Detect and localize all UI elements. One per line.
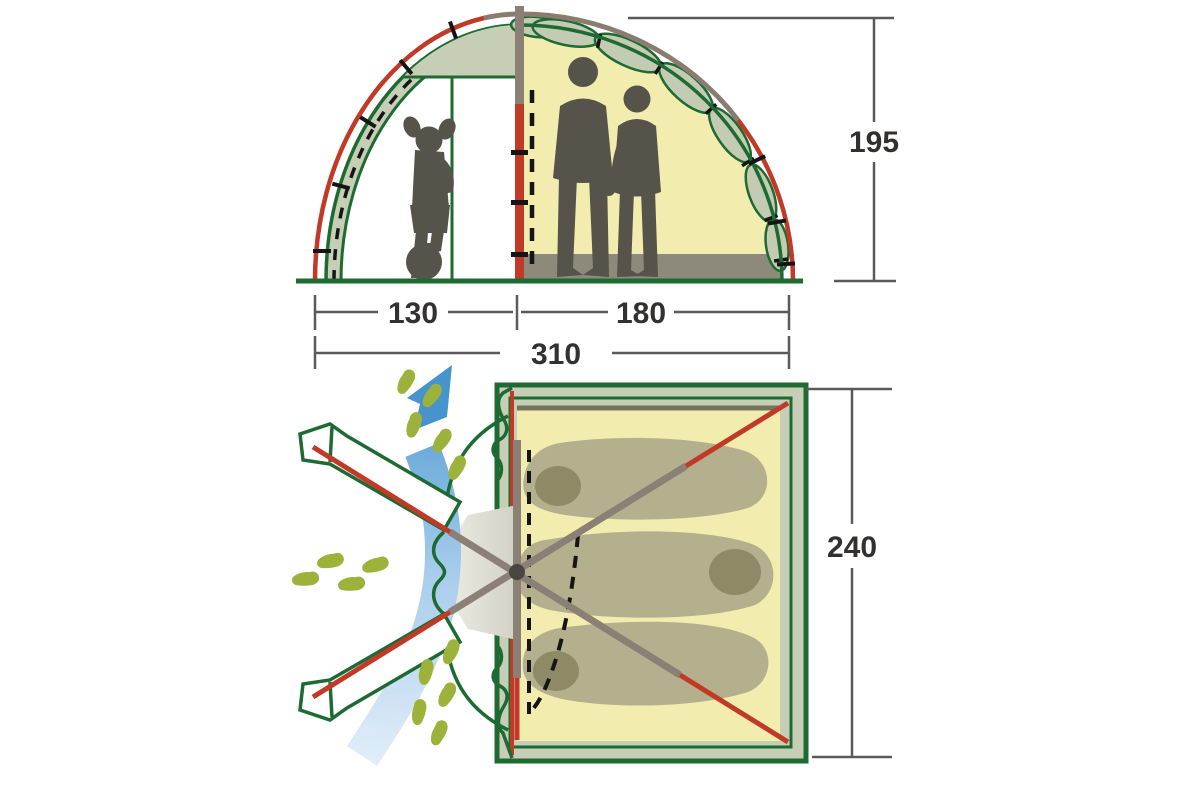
sleeping-bag-1-hood bbox=[535, 466, 581, 506]
sleeping-bag-3-hood bbox=[533, 651, 579, 691]
man-silhouette bbox=[568, 57, 598, 87]
total-width-label: 310 bbox=[531, 338, 581, 371]
tent-dimension-diagram: 195 130 180 310 bbox=[0, 0, 1200, 800]
canopy-wedge bbox=[403, 25, 520, 77]
floor-plan-view bbox=[291, 365, 806, 761]
ball bbox=[406, 244, 442, 280]
diagram-canvas: 195 130 180 310 bbox=[0, 0, 1200, 800]
vestibule-width-label: 130 bbox=[388, 297, 438, 330]
cross-section-view bbox=[296, 6, 803, 282]
child-silhouette bbox=[400, 114, 459, 280]
pole-hub bbox=[509, 564, 525, 580]
floor-plan-dimensions bbox=[806, 389, 892, 757]
height-label: 195 bbox=[849, 126, 899, 159]
sleeping-width-label: 180 bbox=[616, 297, 666, 330]
sleeping-bag-2-hood bbox=[709, 549, 761, 595]
woman-silhouette bbox=[624, 86, 651, 113]
depth-label: 240 bbox=[827, 531, 877, 564]
